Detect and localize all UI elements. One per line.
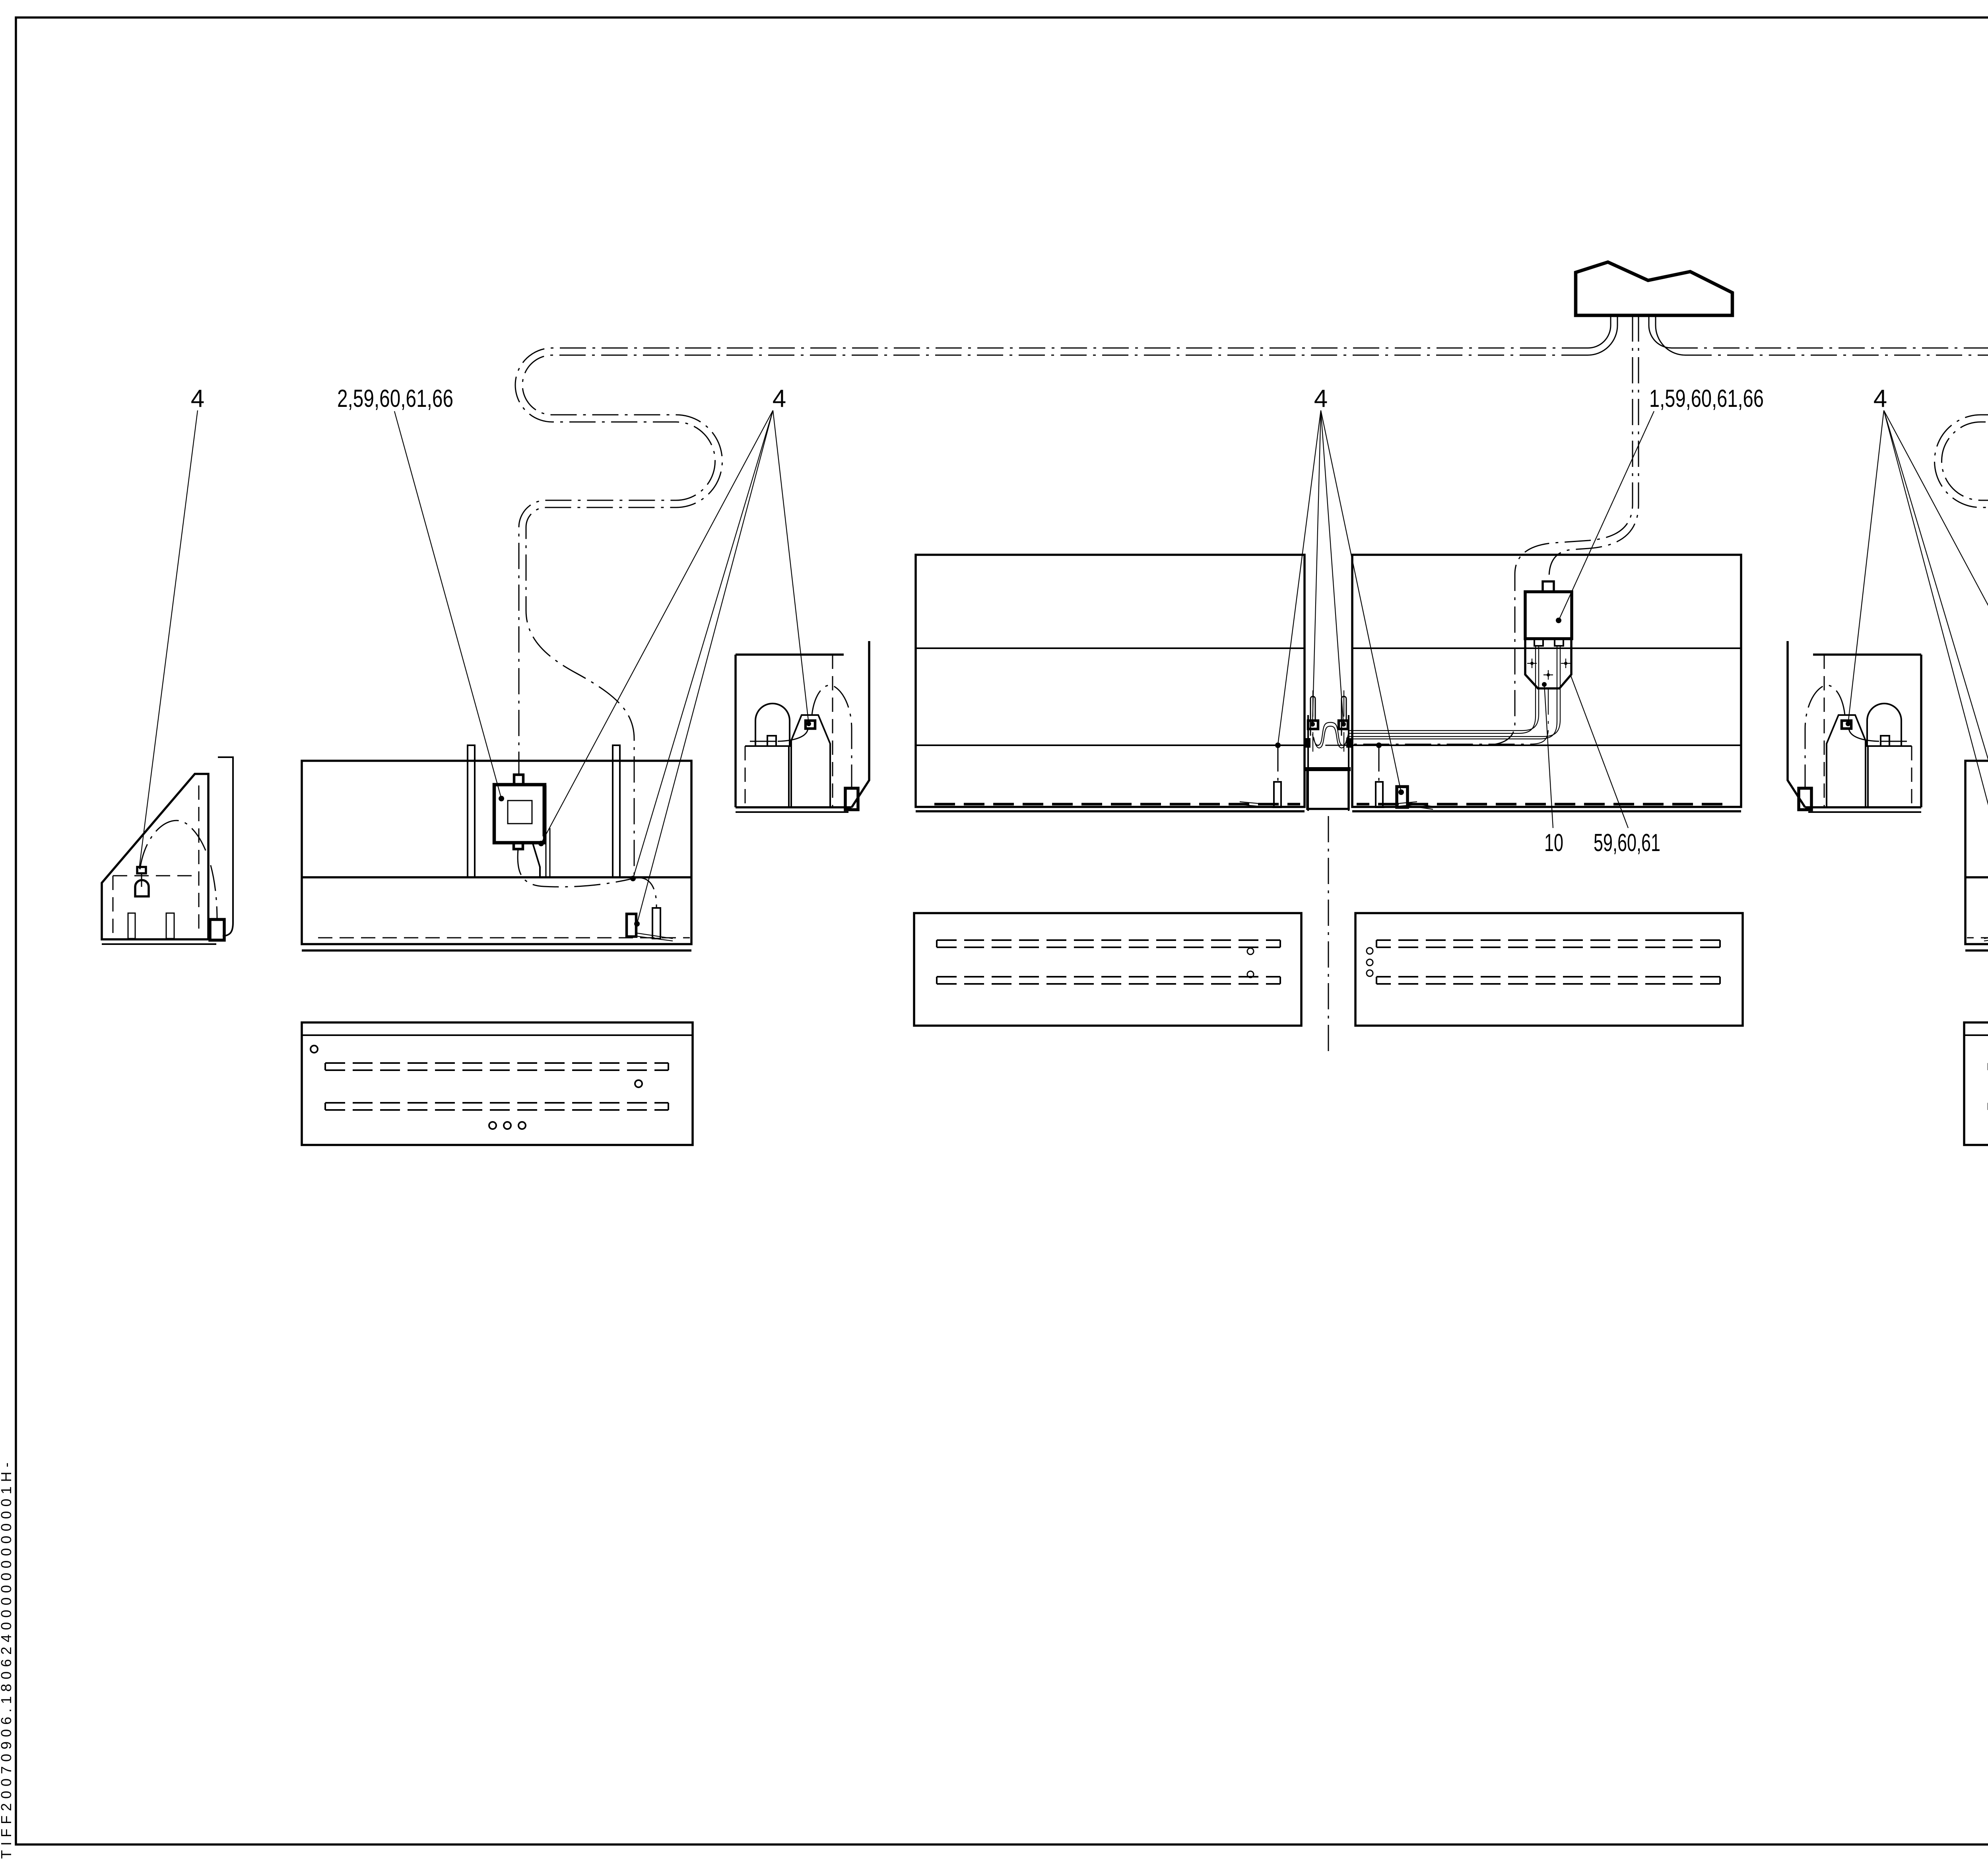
svg-text:4: 4: [191, 385, 204, 412]
svg-text:1,59,60,61,66: 1,59,60,61,66: [1649, 385, 1764, 412]
svg-text:59,60,61: 59,60,61: [1594, 829, 1660, 857]
svg-text:TIFF20070906.18062400000000000: TIFF20070906.180624000000000001H-: [0, 1458, 14, 1859]
svg-text:4: 4: [773, 385, 786, 412]
svg-text:4: 4: [1314, 385, 1328, 412]
svg-text:4: 4: [1873, 385, 1887, 412]
svg-text:2,59,60,61,66: 2,59,60,61,66: [337, 385, 453, 412]
svg-text:10: 10: [1544, 829, 1563, 857]
